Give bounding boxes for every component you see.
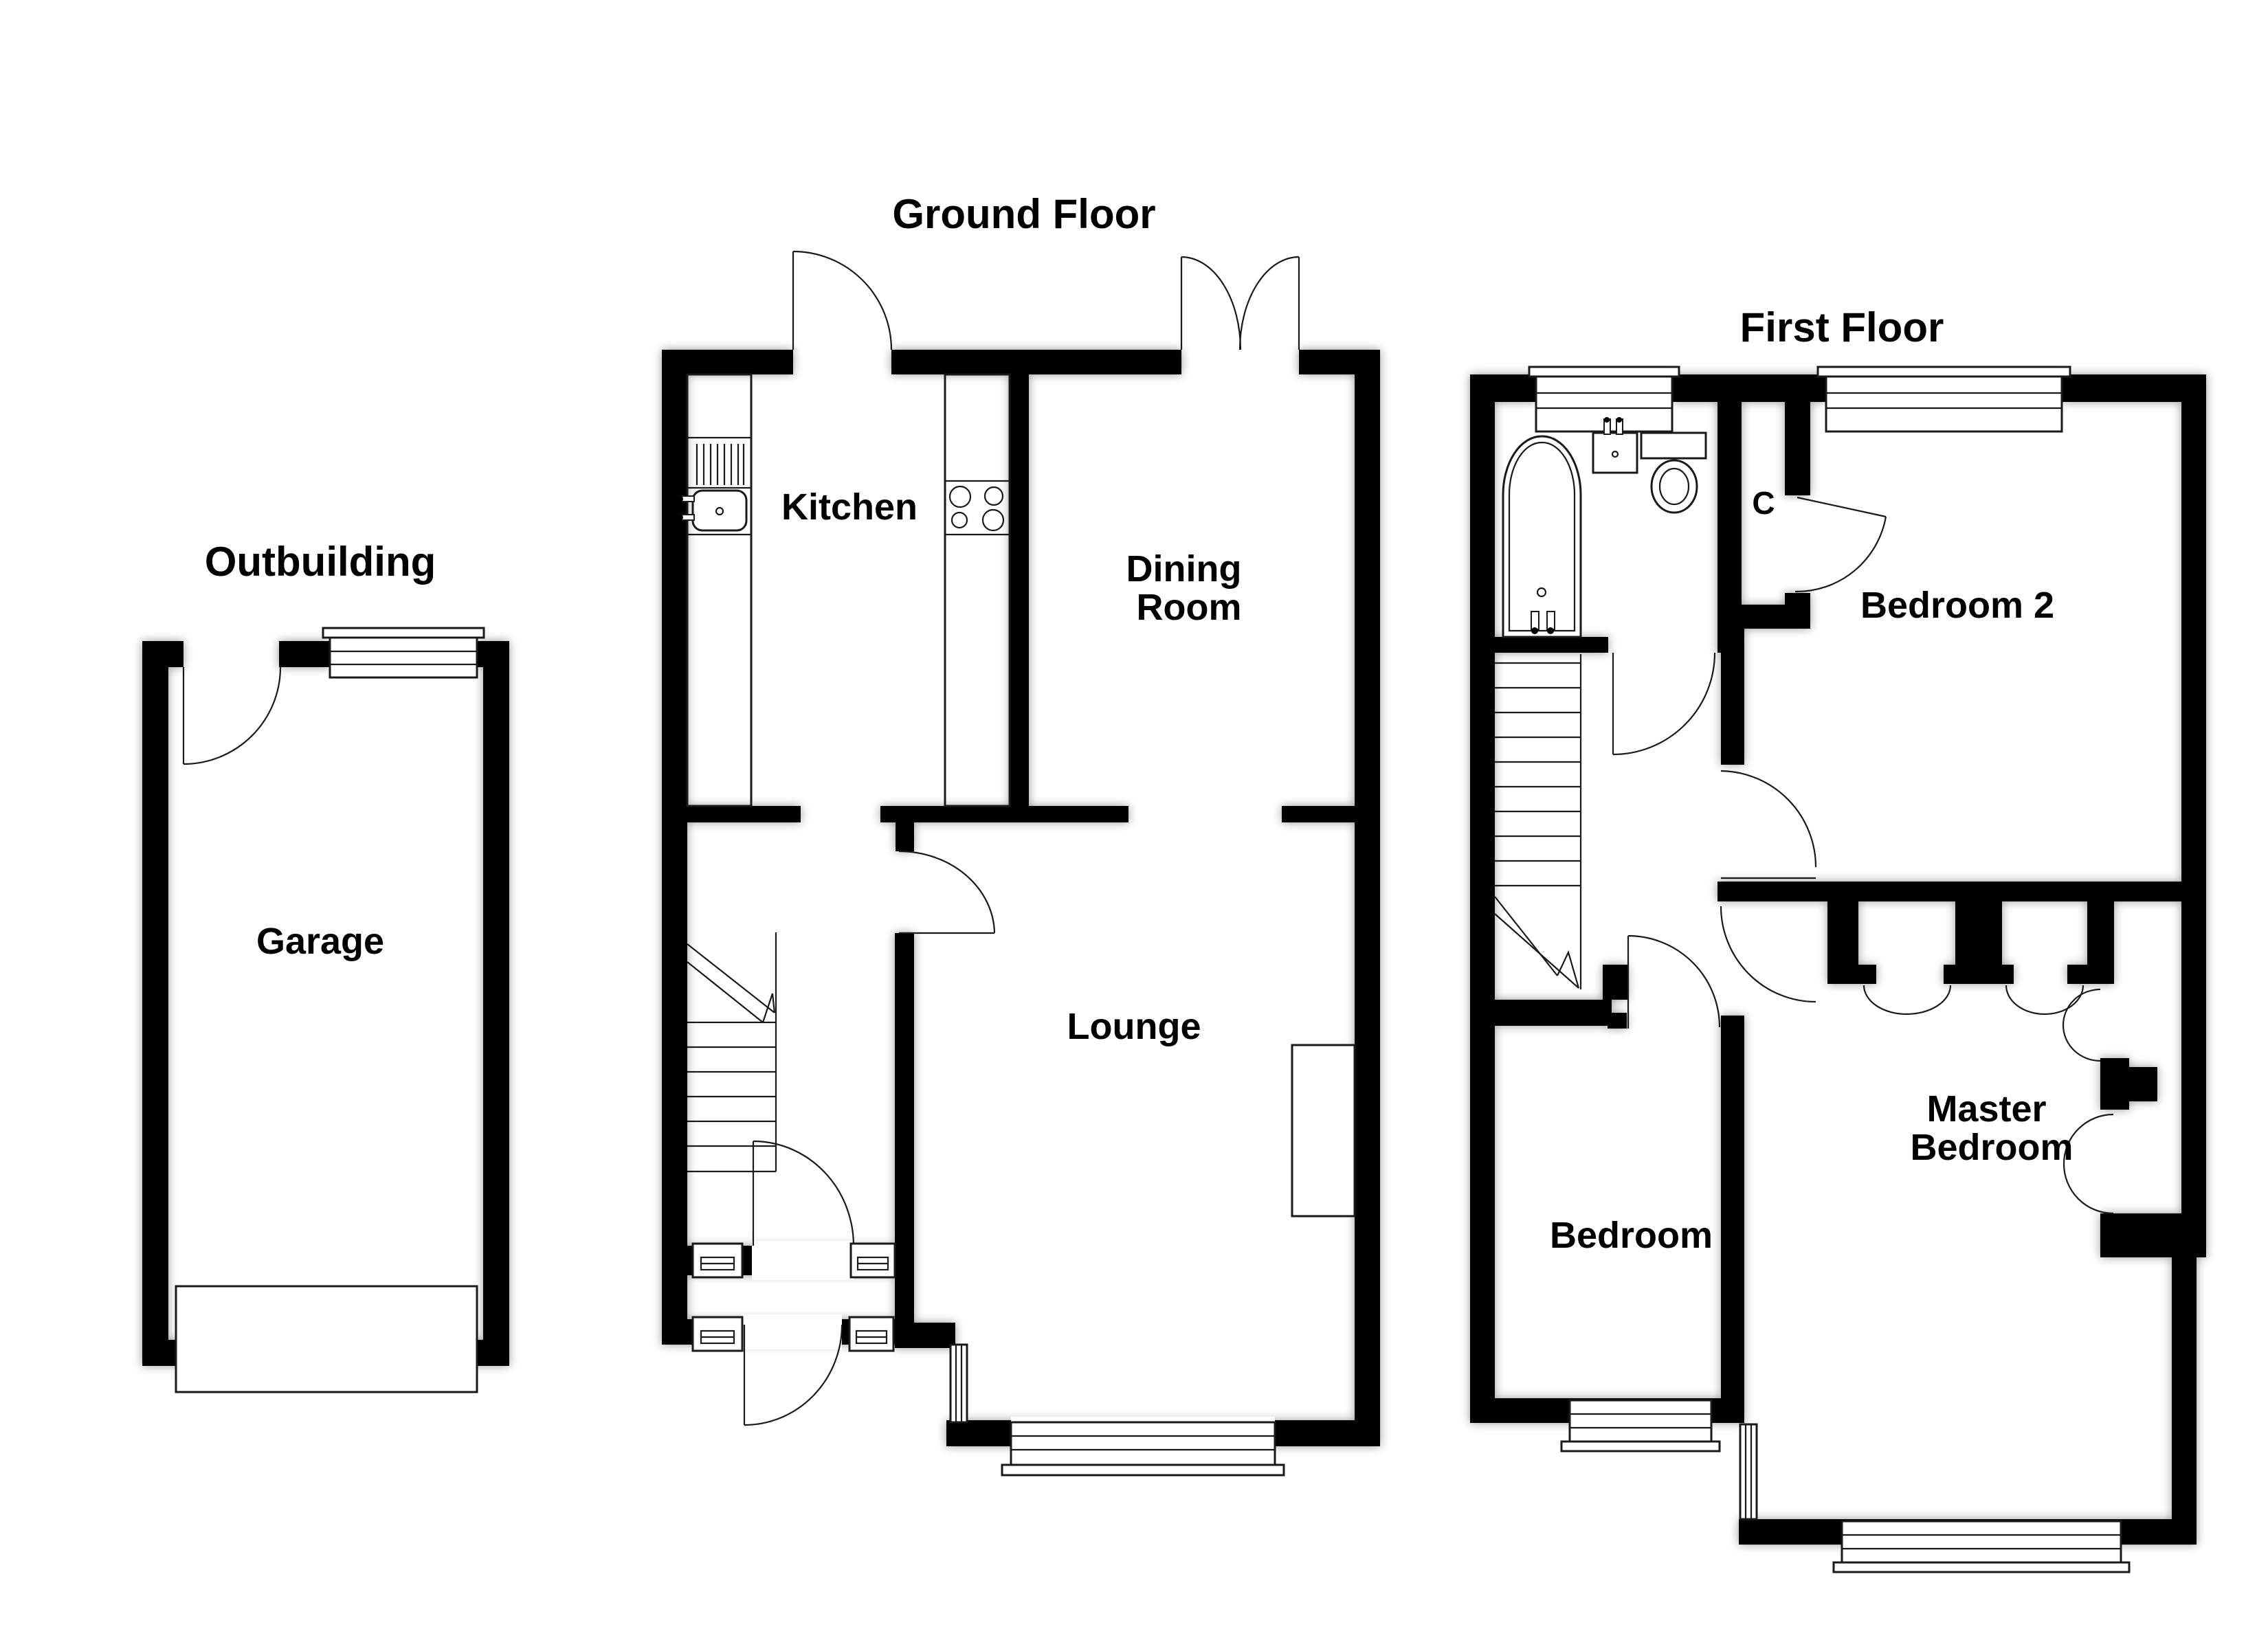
first-floor-stairs <box>1495 654 1581 989</box>
kitchen-back-door <box>793 251 891 350</box>
room-label-master: Master Bedroom <box>1910 1088 2073 1168</box>
room-label-garage: Garage <box>256 921 384 962</box>
window-frame <box>950 1345 967 1422</box>
window-glazing <box>1570 1400 1711 1442</box>
closet-alcove1-doors <box>1864 985 1950 1014</box>
bedroom3-window <box>1561 1400 1720 1451</box>
porch-window <box>693 1317 742 1351</box>
master-window <box>1834 1521 2129 1572</box>
alcove-stub <box>2087 901 2114 965</box>
closet-door-arc <box>2063 1025 2100 1061</box>
lounge-bottom-window <box>1002 1422 1284 1475</box>
window-frame <box>1740 1424 1757 1519</box>
alcove-stub-cap <box>1827 965 1876 984</box>
window-glazing <box>1011 1422 1275 1465</box>
room-label-dining: Dining Room <box>1126 548 1252 628</box>
hob-icon <box>945 481 1010 535</box>
garage-door <box>176 1286 477 1392</box>
wall-corner-bridge <box>914 1323 955 1348</box>
door-arc <box>1628 936 1720 1027</box>
front-doorway <box>743 1314 842 1349</box>
window-frame <box>693 1317 742 1351</box>
wall-door-stub <box>1608 1013 1627 1029</box>
dining-line2: Room <box>1137 587 1242 628</box>
ground-floor-walls <box>662 350 1380 1446</box>
wall-left <box>142 641 168 1366</box>
first-floor-title: First Floor <box>1740 304 1944 350</box>
closet-alcove2-doors <box>2006 985 2083 1014</box>
wall-dining-bottom <box>1282 806 1380 822</box>
tub-tap <box>1547 612 1555 629</box>
door-arc <box>899 851 994 933</box>
wall-kitchen-bottom-b <box>880 806 1129 822</box>
sink-basin <box>693 491 746 530</box>
window-sill <box>1834 1562 2129 1572</box>
closet-door-arc <box>2064 1164 2113 1213</box>
outbuilding: Outbuilding Garage <box>142 539 509 1392</box>
tap-dot <box>676 495 683 502</box>
floor-plan-page: Outbuilding Garage Ground Floor <box>0 0 2268 1649</box>
master-line1: Master <box>1926 1088 2046 1130</box>
garage-window <box>323 628 484 677</box>
ground-floor-stairs <box>687 932 776 1171</box>
master-line2: Bedroom <box>1910 1127 2073 1168</box>
burner <box>952 513 967 528</box>
wall-top-a <box>142 641 184 667</box>
wall-right <box>1355 350 1380 1446</box>
burner <box>985 487 1003 505</box>
door-arc <box>1240 257 1299 350</box>
ground-floor-title: Ground Floor <box>892 191 1155 237</box>
tap-dot <box>1616 417 1622 423</box>
toilet-icon <box>1641 433 1706 513</box>
alcove-stub-cap <box>2067 965 2114 984</box>
garage-entrance-door <box>184 667 280 764</box>
door-leaf <box>1797 497 1886 517</box>
alcove-stub <box>1955 901 2002 965</box>
tap-dot <box>1604 417 1610 423</box>
ground-floor-openings <box>743 1241 1275 1450</box>
wall-lounge-left <box>895 933 914 1348</box>
door-arc <box>1721 906 1816 1002</box>
first-floor: First Floor <box>1470 304 2206 1572</box>
wall-bedroom2-left <box>1721 629 1744 765</box>
hall-lounge-door <box>899 851 994 933</box>
wall-right <box>2181 374 2206 1257</box>
dining-line1: Dining <box>1126 548 1242 590</box>
kitchen-fixtures <box>676 374 1010 806</box>
closet-door-arc <box>2063 989 2100 1025</box>
room-label-closet-c: C <box>1752 485 1775 521</box>
stair-break-line <box>1495 914 1579 988</box>
wall-top-b <box>1672 374 1826 402</box>
stair-break-line <box>687 962 763 1022</box>
alcove-stub <box>1827 901 1858 965</box>
door-arc <box>793 251 891 350</box>
ground-floor: Ground Floor <box>662 191 1380 1475</box>
closet-door-arc <box>2006 985 2045 1014</box>
room-label-bedroom2: Bedroom 2 <box>1860 585 2054 626</box>
wall-top-c <box>477 641 509 667</box>
closet-right-a-doors <box>2063 989 2100 1061</box>
wall-closet-east <box>1785 402 1810 495</box>
door-arc <box>1721 771 1816 867</box>
wall-bedroom3-north <box>1495 1000 1612 1026</box>
window-sill <box>1529 367 1679 377</box>
wall-bedroom3-jog <box>1603 965 1627 1000</box>
bedroom2-door <box>1721 771 1816 878</box>
porch-inner-door <box>753 1141 854 1246</box>
room-label-kitchen: Kitchen <box>781 486 918 528</box>
stair-break-line <box>1495 897 1557 976</box>
toilet-cistern <box>1641 433 1706 458</box>
drainer-icon <box>697 444 744 485</box>
wall-kitchen-dining-divider <box>1010 374 1029 822</box>
porch-inner-doorway <box>752 1241 854 1280</box>
step-side-window <box>1740 1424 1757 1519</box>
bathroom-door <box>1613 653 1715 754</box>
door-arc <box>1181 257 1241 350</box>
door-arc <box>184 667 280 764</box>
wall-bedroom3-east <box>1721 1016 1744 1398</box>
bedroom2-window <box>1818 367 2070 431</box>
wall-top-b <box>891 350 1181 374</box>
closet-door-arc <box>1906 985 1950 1014</box>
wall-closet-south <box>1721 605 1810 629</box>
fireplace <box>1292 1045 1355 1216</box>
master-bedroom-door <box>1721 906 1816 1002</box>
closet-door-arc <box>1864 985 1906 1014</box>
room-label-bedroom3: Bedroom 3 <box>1550 1215 1744 1256</box>
wall-bathroom-bottom <box>1470 637 1608 653</box>
wall-door-stub <box>896 822 914 851</box>
door-arc <box>1795 517 1886 592</box>
door-arc <box>753 1141 854 1246</box>
wall-closet-jog <box>2129 1067 2157 1101</box>
alcove-stub-cap <box>1944 965 2014 984</box>
closet-c-door <box>1795 497 1886 592</box>
counter-right <box>945 374 1010 806</box>
wall-kitchen-bottom-a <box>687 806 801 822</box>
wall-landing-south <box>1717 882 2206 901</box>
closet-door-arc <box>2045 985 2083 1014</box>
basin-bowl <box>1593 433 1637 473</box>
floor-plan-svg: Outbuilding Garage Ground Floor <box>0 0 2268 1649</box>
window-sill <box>1002 1465 1284 1475</box>
window-glazing <box>1826 377 2062 431</box>
counter-left <box>687 374 751 806</box>
wall-right <box>483 641 509 1366</box>
burner <box>983 510 1003 530</box>
window-sill <box>1818 367 2070 377</box>
door-arc <box>1613 653 1715 754</box>
lounge-side-window <box>950 1345 967 1422</box>
dining-french-doors <box>1181 257 1299 350</box>
window-sill <box>1561 1442 1720 1451</box>
stair-break-notch <box>1557 952 1579 988</box>
bathroom-fixtures <box>1503 417 1706 637</box>
porch-window <box>851 1244 895 1277</box>
porch-window <box>693 1244 742 1277</box>
window-frame <box>693 1244 742 1277</box>
window-glazing <box>330 638 477 677</box>
wall-closet-mid <box>2100 1058 2129 1110</box>
outbuilding-title: Outbuilding <box>205 539 436 585</box>
bedroom3-door <box>1628 936 1720 1029</box>
burner <box>950 486 970 507</box>
window-sill <box>323 628 484 638</box>
outbuilding-walls <box>142 641 509 1366</box>
stair-break-line <box>687 944 775 1013</box>
porch-window <box>849 1317 893 1351</box>
tap-dot <box>1531 627 1538 634</box>
wall-master-right <box>2172 1230 2197 1545</box>
bathtub-icon <box>1503 436 1581 637</box>
wall-left <box>1470 374 1495 1423</box>
window-glazing <box>1842 1521 2121 1562</box>
tap-dot <box>1547 627 1554 634</box>
wall-top-b <box>279 641 330 667</box>
tap-dot <box>676 514 683 521</box>
tub-tap <box>1531 612 1539 629</box>
room-label-lounge: Lounge <box>1067 1006 1201 1047</box>
